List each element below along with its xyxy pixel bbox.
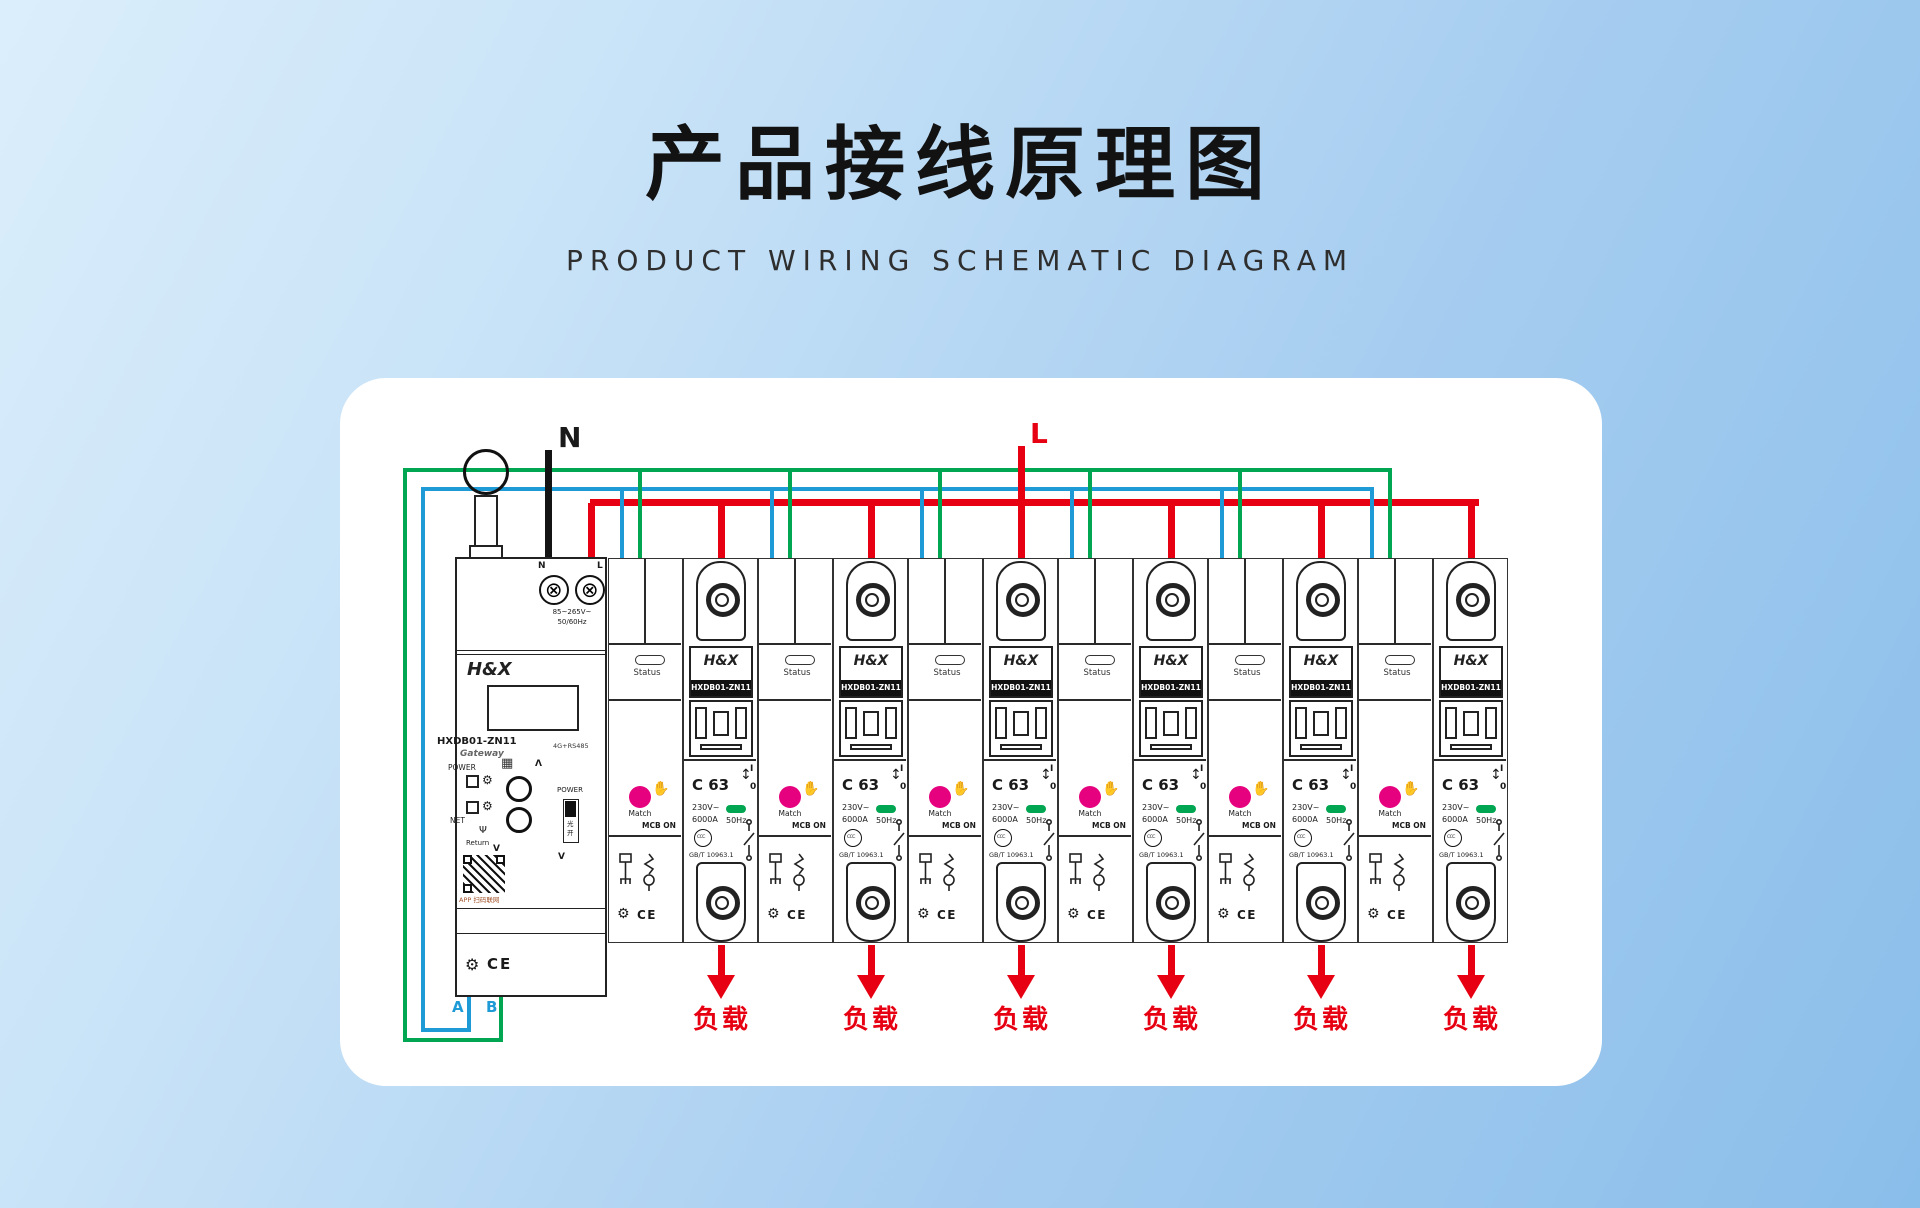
load-label: 负载: [842, 1007, 902, 1033]
breaker-module: H&X HXDB01-ZN11 C 63 I: [1433, 558, 1508, 943]
gateway-divider: [457, 650, 605, 655]
section-divider: [1059, 835, 1131, 837]
gateway-frequency: 50/60Hz: [541, 619, 603, 626]
mech-toggle: [1463, 711, 1479, 736]
status-label: Status: [617, 669, 677, 678]
match-button: [1379, 786, 1401, 808]
breaker-unit: Status ✋ Match MCB ON: [908, 558, 1058, 1038]
mcb-on-label: MCB ON: [1387, 822, 1431, 830]
breaker-unit: Status ✋ Match MCB ON: [1208, 558, 1358, 1038]
mech-left-latch: [995, 707, 1007, 739]
mech-base: [850, 744, 892, 750]
breaker-unit: Status ✋ Match MCB ON: [1358, 558, 1508, 1038]
antenna-icon: Ψ: [479, 826, 487, 836]
wiring-diagram-icon: [917, 851, 963, 897]
mech-base: [1000, 744, 1042, 750]
load-arrow-shaft: [718, 945, 725, 975]
breaker-unit: Status ✋ Match MCB ON: [608, 558, 758, 1038]
breaker-model: HXDB01-ZN11: [1291, 684, 1351, 692]
section-divider: [1209, 699, 1281, 701]
brand-plate: H&X HXDB01-ZN11: [1139, 646, 1203, 698]
mech-left-latch: [1445, 707, 1457, 739]
antenna-ring-icon: [463, 449, 509, 495]
brand-plate: H&X HXDB01-ZN11: [1289, 646, 1353, 698]
ccc-cert-text: CCC: [997, 836, 1005, 841]
standard-label: GB/T 10963.1: [1139, 852, 1184, 859]
wire-green-drop: [788, 470, 792, 558]
load-arrow-shaft: [1318, 945, 1325, 975]
wire-blue-left: [421, 487, 425, 1032]
top-terminal-hole: [1165, 593, 1179, 607]
breaker-symbol-icon: [742, 817, 756, 863]
rating-label: C 63: [692, 778, 729, 793]
gateway-power-label: POWER: [448, 764, 476, 772]
wire-green-b-stub: [499, 997, 503, 1042]
toggle-mechanism: [1439, 700, 1503, 757]
breaking-capacity-label: 6000A: [1292, 816, 1318, 824]
standard-label: GB/T 10963.1: [689, 852, 734, 859]
ce-mark: CE: [1087, 909, 1107, 921]
rating-label: C 63: [842, 778, 879, 793]
standard-label: GB/T 10963.1: [1439, 852, 1484, 859]
wiring-diagram-icon: [1217, 851, 1263, 897]
ccc-cert-text: CCC: [1147, 836, 1155, 841]
match-button: [1229, 786, 1251, 808]
antenna-base: [469, 545, 503, 559]
breaking-capacity-label: 6000A: [1142, 816, 1168, 824]
status-led-green: [1326, 805, 1346, 813]
ccc-cert-text: CCC: [1297, 836, 1305, 841]
ccc-cert-text: CCC: [697, 836, 705, 841]
wire-live-drop: [1168, 502, 1175, 558]
ce-mark: CE: [937, 909, 957, 921]
model-band: HXDB01-ZN11: [1441, 680, 1501, 696]
wiring-diagram-icon: [1367, 851, 1413, 897]
updown-icon: ↕: [1340, 768, 1352, 782]
gateway-return-label: Return: [466, 840, 489, 847]
switch-knob: [565, 801, 576, 817]
wire-green-left: [403, 468, 407, 1042]
toggle-mechanism: [1289, 700, 1353, 757]
breaker-brand-logo: H&X: [691, 654, 751, 668]
section-divider: [609, 643, 681, 645]
status-led-green: [726, 805, 746, 813]
section-divider: [759, 835, 831, 837]
gateway-lcd-display: [487, 685, 579, 731]
section-divider: [684, 759, 756, 761]
breaker-model: HXDB01-ZN11: [1441, 684, 1501, 692]
section-divider: [1209, 643, 1281, 645]
page: 产品接线原理图 PRODUCT WIRING SCHEMATIC DIAGRAM…: [0, 0, 1920, 1208]
toggle-mechanism: [1139, 700, 1203, 757]
hand-icon: ✋: [1402, 782, 1419, 796]
section-divider: [1434, 759, 1506, 761]
load-arrow-shaft: [1468, 945, 1475, 975]
section-divider: [759, 643, 831, 645]
breaker-module: H&X HXDB01-ZN11 C 63 I: [1283, 558, 1358, 943]
gear-cert-icon: ⚙: [465, 957, 479, 973]
rating-label: C 63: [1442, 778, 1479, 793]
top-terminal-hole: [1315, 593, 1329, 607]
grid-icon: ▦: [501, 757, 513, 770]
mech-toggle: [1163, 711, 1179, 736]
mcb-on-label: MCB ON: [637, 822, 681, 830]
breaker-model: HXDB01-ZN11: [1141, 684, 1201, 692]
breaker-row: Status ✋ Match MCB ON: [608, 558, 1508, 1038]
toggle-mechanism: [989, 700, 1053, 757]
section-divider: [1059, 643, 1131, 645]
top-terminal-hole: [1015, 593, 1029, 607]
bottom-terminal-hole: [1165, 896, 1179, 910]
status-led-green: [876, 805, 896, 813]
terminal-b-label: B: [486, 1000, 497, 1015]
mech-base: [1450, 744, 1492, 750]
status-label: Status: [767, 669, 827, 678]
gear-cert-icon: ⚙: [1067, 907, 1080, 921]
live-label: L: [1030, 420, 1048, 448]
wire-green-drop: [1388, 470, 1392, 558]
ccc-cert-icon: CCC: [1144, 829, 1162, 847]
wire-green-drop: [1088, 470, 1092, 558]
model-band: HXDB01-ZN11: [841, 680, 901, 696]
off-mark: 0: [1500, 783, 1506, 792]
section-divider: [609, 835, 681, 837]
wire-green-drop: [938, 470, 942, 558]
status-module: Status ✋ Match MCB ON: [908, 558, 983, 943]
qr-finder: [496, 855, 505, 864]
wire-blue-bottom: [421, 1028, 471, 1032]
wire-live-drop: [1318, 502, 1325, 558]
updown-icon: ↕: [1190, 768, 1202, 782]
load-arrow-head-icon: [707, 975, 735, 999]
load-arrow-head-icon: [1457, 975, 1485, 999]
brand-plate: H&X HXDB01-ZN11: [839, 646, 903, 698]
breaker-module: H&X HXDB01-ZN11 C 63 I: [833, 558, 908, 943]
load-label: 负载: [1292, 1007, 1352, 1033]
bottom-terminal-hole: [1015, 896, 1029, 910]
breaker-module: H&X HXDB01-ZN11 C 63 I: [683, 558, 758, 943]
status-led-slot: [1235, 655, 1265, 665]
ce-mark: CE: [787, 909, 807, 921]
gateway-n-label: N: [538, 562, 546, 571]
breaking-capacity-label: 6000A: [1442, 816, 1468, 824]
hand-icon: ✋: [952, 782, 969, 796]
breaker-brand-logo: H&X: [841, 654, 901, 668]
cell-divider: [1394, 559, 1396, 643]
mech-right-latch: [1335, 707, 1347, 739]
cell-divider: [944, 559, 946, 643]
switch-text: 光开: [567, 820, 575, 838]
breaker-brand-logo: H&X: [1441, 654, 1501, 668]
neutral-label: N: [558, 424, 581, 452]
match-button: [779, 786, 801, 808]
wire-blue-drop: [1220, 489, 1224, 558]
gear-cert-icon: ⚙: [767, 907, 780, 921]
hand-icon: ✋: [1252, 782, 1269, 796]
cell-divider: [1244, 559, 1246, 643]
qr-finder: [463, 855, 472, 864]
mech-right-latch: [885, 707, 897, 739]
breaking-capacity-label: 6000A: [692, 816, 718, 824]
match-label: Match: [1068, 810, 1112, 818]
gateway-device: N L ⊕ ⊕ 85~265V~ 50/60Hz H&X HXDB01-ZN11…: [455, 557, 607, 997]
wiring-diagram-icon: [1067, 851, 1113, 897]
status-led-green: [1176, 805, 1196, 813]
status-led-slot: [935, 655, 965, 665]
status-led-slot: [1385, 655, 1415, 665]
match-label: Match: [918, 810, 962, 818]
breaker-symbol-icon: [892, 817, 906, 863]
gateway-side-power-label: POWER: [557, 787, 583, 794]
rating-label: C 63: [1142, 778, 1179, 793]
match-button: [629, 786, 651, 808]
off-mark: 0: [900, 783, 906, 792]
status-module: Status ✋ Match MCB ON: [758, 558, 833, 943]
wire-live-gateway-stub: [588, 503, 595, 563]
model-band: HXDB01-ZN11: [691, 680, 751, 696]
breaker-brand-logo: H&X: [1291, 654, 1351, 668]
load-arrow-head-icon: [1307, 975, 1335, 999]
terminal-a-label: A: [452, 1000, 464, 1015]
section-divider: [759, 699, 831, 701]
mech-left-latch: [1295, 707, 1307, 739]
breaking-capacity-label: 6000A: [992, 816, 1018, 824]
section-divider: [834, 759, 906, 761]
ce-mark: CE: [637, 909, 657, 921]
load-arrow-shaft: [868, 945, 875, 975]
toggle-mechanism: [689, 700, 753, 757]
ccc-cert-icon: CCC: [1444, 829, 1462, 847]
wiring-diagram-icon: [767, 851, 813, 897]
breaker-symbol-icon: [1042, 817, 1056, 863]
gateway-l-label: L: [597, 562, 603, 571]
section-divider: [909, 835, 981, 837]
mech-right-latch: [735, 707, 747, 739]
load-label: 负载: [1142, 1007, 1202, 1033]
breaker-model: HXDB01-ZN11: [691, 684, 751, 692]
wire-blue-drop: [1070, 489, 1074, 558]
section-divider: [609, 699, 681, 701]
hand-icon: ✋: [652, 782, 669, 796]
gear-icon: ⚙: [482, 800, 493, 812]
breaker-unit: Status ✋ Match MCB ON: [758, 558, 908, 1038]
ce-mark: CE: [1387, 909, 1407, 921]
section-divider: [1059, 699, 1131, 701]
page-subtitle: PRODUCT WIRING SCHEMATIC DIAGRAM: [0, 244, 1920, 277]
wire-live-drop: [718, 502, 725, 558]
ccc-cert-text: CCC: [1447, 836, 1455, 841]
page-title: 产品接线原理图: [0, 100, 1920, 216]
voltage-label: 230V~: [842, 804, 869, 812]
up-button: [506, 776, 532, 802]
mcb-on-label: MCB ON: [1237, 822, 1281, 830]
model-band: HXDB01-ZN11: [1291, 680, 1351, 696]
gateway-voltage: 85~265V~: [541, 609, 603, 616]
model-band: HXDB01-ZN11: [1141, 680, 1201, 696]
breaker-brand-logo: H&X: [1141, 654, 1201, 668]
load-label: 负载: [692, 1007, 752, 1033]
gear-cert-icon: ⚙: [1367, 907, 1380, 921]
bottom-terminal-hole: [1465, 896, 1479, 910]
voltage-label: 230V~: [1442, 804, 1469, 812]
status-module: Status ✋ Match MCB ON: [608, 558, 683, 943]
load-arrow-head-icon: [1157, 975, 1185, 999]
section-divider: [984, 759, 1056, 761]
updown-icon: ↕: [1490, 768, 1502, 782]
gateway-down-label-right: V: [558, 853, 565, 862]
status-label: Status: [917, 669, 977, 678]
brand-plate: H&X HXDB01-ZN11: [989, 646, 1053, 698]
match-label: Match: [618, 810, 662, 818]
breaker-symbol-icon: [1342, 817, 1356, 863]
wire-live-drop: [868, 502, 875, 558]
status-module: Status ✋ Match MCB ON: [1058, 558, 1133, 943]
match-label: Match: [1368, 810, 1412, 818]
bottom-terminal-hole: [865, 896, 879, 910]
power-slide-switch: 光开: [563, 799, 579, 843]
wire-live-label-stub: [1018, 446, 1025, 504]
bottom-terminal-hole: [715, 896, 729, 910]
status-led-slot: [635, 655, 665, 665]
mcb-on-label: MCB ON: [937, 822, 981, 830]
ccc-cert-icon: CCC: [994, 829, 1012, 847]
gear-cert-icon: ⚙: [1217, 907, 1230, 921]
wire-blue-drop: [920, 489, 924, 558]
status-module: Status ✋ Match MCB ON: [1208, 558, 1283, 943]
gear-cert-icon: ⚙: [617, 907, 630, 921]
updown-icon: ↕: [890, 768, 902, 782]
ccc-cert-text: CCC: [847, 836, 855, 841]
breaker-model: HXDB01-ZN11: [991, 684, 1051, 692]
cell-divider: [1094, 559, 1096, 643]
off-mark: 0: [1350, 783, 1356, 792]
off-mark: 0: [1200, 783, 1206, 792]
mech-right-latch: [1035, 707, 1047, 739]
wire-neutral: [545, 450, 552, 562]
cell-divider: [644, 559, 646, 643]
mech-base: [1300, 744, 1342, 750]
load-label: 负载: [1442, 1007, 1502, 1033]
mech-right-latch: [1485, 707, 1497, 739]
model-band: HXDB01-ZN11: [991, 680, 1051, 696]
net-indicator: [466, 801, 479, 814]
section-divider: [1284, 759, 1356, 761]
voltage-label: 230V~: [992, 804, 1019, 812]
qr-finder: [463, 884, 472, 893]
screw-terminal-n-icon: ⊕: [533, 569, 575, 611]
mcb-on-label: MCB ON: [1087, 822, 1131, 830]
section-divider: [909, 643, 981, 645]
brand-plate: H&X HXDB01-ZN11: [689, 646, 753, 698]
voltage-label: 230V~: [1142, 804, 1169, 812]
standard-label: GB/T 10963.1: [989, 852, 1034, 859]
mech-left-latch: [845, 707, 857, 739]
match-button: [929, 786, 951, 808]
standard-label: GB/T 10963.1: [839, 852, 884, 859]
mech-toggle: [1313, 711, 1329, 736]
mcb-on-label: MCB ON: [787, 822, 831, 830]
gateway-comm: 4G+RS485: [553, 743, 589, 750]
wire-blue-a-stub: [467, 997, 471, 1032]
mech-toggle: [863, 711, 879, 736]
wire-blue-drop: [620, 489, 624, 558]
updown-icon: ↕: [740, 768, 752, 782]
breaker-symbol-icon: [1492, 817, 1506, 863]
gear-icon: ⚙: [482, 774, 493, 786]
rating-label: C 63: [1292, 778, 1329, 793]
load-arrow-shaft: [1168, 945, 1175, 975]
ccc-cert-icon: CCC: [694, 829, 712, 847]
ccc-cert-icon: CCC: [844, 829, 862, 847]
qr-caption: APP 扫码联网: [459, 897, 521, 904]
wire-green-drop: [1238, 470, 1242, 558]
breaker-module: H&X HXDB01-ZN11 C 63 I: [983, 558, 1058, 943]
top-terminal-hole: [865, 593, 879, 607]
section-divider: [1359, 699, 1431, 701]
gateway-net-label: NET: [450, 817, 465, 825]
mech-toggle: [713, 711, 729, 736]
status-module: Status ✋ Match MCB ON: [1358, 558, 1433, 943]
off-mark: 0: [750, 783, 756, 792]
gateway-model: HXDB01-ZN11: [437, 737, 517, 747]
updown-icon: ↕: [1040, 768, 1052, 782]
gateway-down-label: V: [493, 845, 500, 854]
match-label: Match: [768, 810, 812, 818]
mech-base: [1150, 744, 1192, 750]
status-led-green: [1476, 805, 1496, 813]
standard-label: GB/T 10963.1: [1289, 852, 1334, 859]
qr-code: [463, 855, 505, 893]
status-label: Status: [1217, 669, 1277, 678]
mech-right-latch: [1185, 707, 1197, 739]
wiring-diagram-icon: [617, 851, 663, 897]
match-button: [1079, 786, 1101, 808]
wire-live-drop: [1468, 502, 1475, 558]
brand-plate: H&X HXDB01-ZN11: [1439, 646, 1503, 698]
breaker-symbol-icon: [1192, 817, 1206, 863]
hand-icon: ✋: [1102, 782, 1119, 796]
voltage-label: 230V~: [692, 804, 719, 812]
breaker-model: HXDB01-ZN11: [841, 684, 901, 692]
ce-mark: CE: [1237, 909, 1257, 921]
status-label: Status: [1367, 669, 1427, 678]
breaker-module: H&X HXDB01-ZN11 C 63 I: [1133, 558, 1208, 943]
wire-green-drop: [638, 470, 642, 558]
gateway-brand-logo: H&X: [467, 661, 512, 679]
down-button: [506, 807, 532, 833]
breaker-unit: Status ✋ Match MCB ON: [1058, 558, 1208, 1038]
mech-left-latch: [695, 707, 707, 739]
top-terminal-hole: [1465, 593, 1479, 607]
wire-green-bottom: [403, 1038, 503, 1042]
header: 产品接线原理图 PRODUCT WIRING SCHEMATIC DIAGRAM: [0, 0, 1920, 277]
off-mark: 0: [1050, 783, 1056, 792]
screw-terminal-l-icon: ⊕: [569, 569, 611, 611]
breaker-brand-logo: H&X: [991, 654, 1051, 668]
din-rail-band: [457, 908, 605, 934]
gear-cert-icon: ⚙: [917, 907, 930, 921]
toggle-mechanism: [839, 700, 903, 757]
wire-blue-drop: [1370, 489, 1374, 558]
hand-icon: ✋: [802, 782, 819, 796]
rating-label: C 63: [992, 778, 1029, 793]
voltage-label: 230V~: [1292, 804, 1319, 812]
mech-left-latch: [1145, 707, 1157, 739]
gateway-ce-mark: CE: [487, 957, 512, 972]
section-divider: [909, 699, 981, 701]
load-label: 负载: [992, 1007, 1052, 1033]
load-arrow-head-icon: [857, 975, 885, 999]
